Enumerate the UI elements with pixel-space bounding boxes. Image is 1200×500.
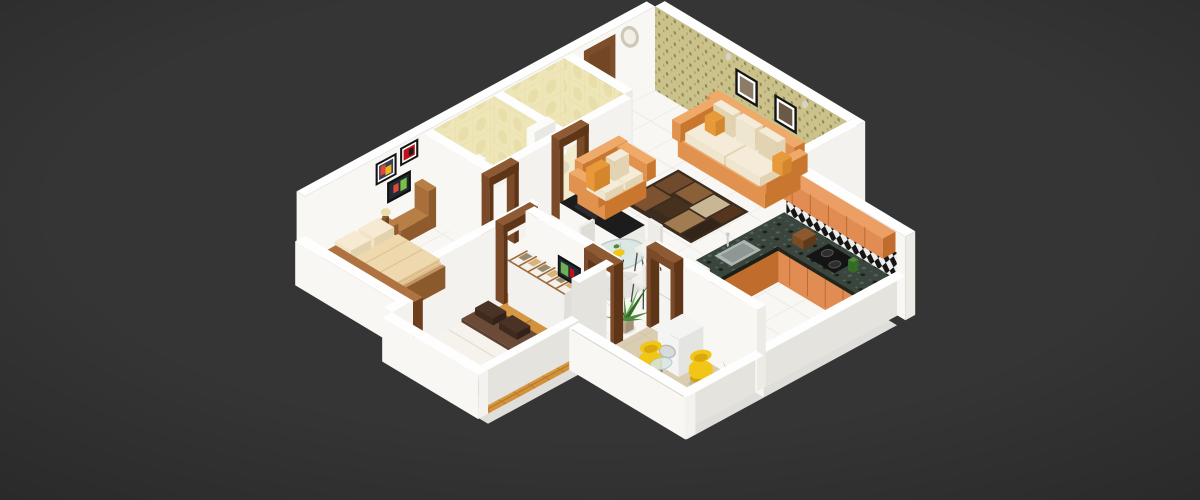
isometric-floor-plan: 3D isometric render of a 2 BHK apartment… (0, 0, 1200, 500)
floor-plan-render: 3D isometric render of a 2 BHK apartment… (0, 0, 1200, 500)
